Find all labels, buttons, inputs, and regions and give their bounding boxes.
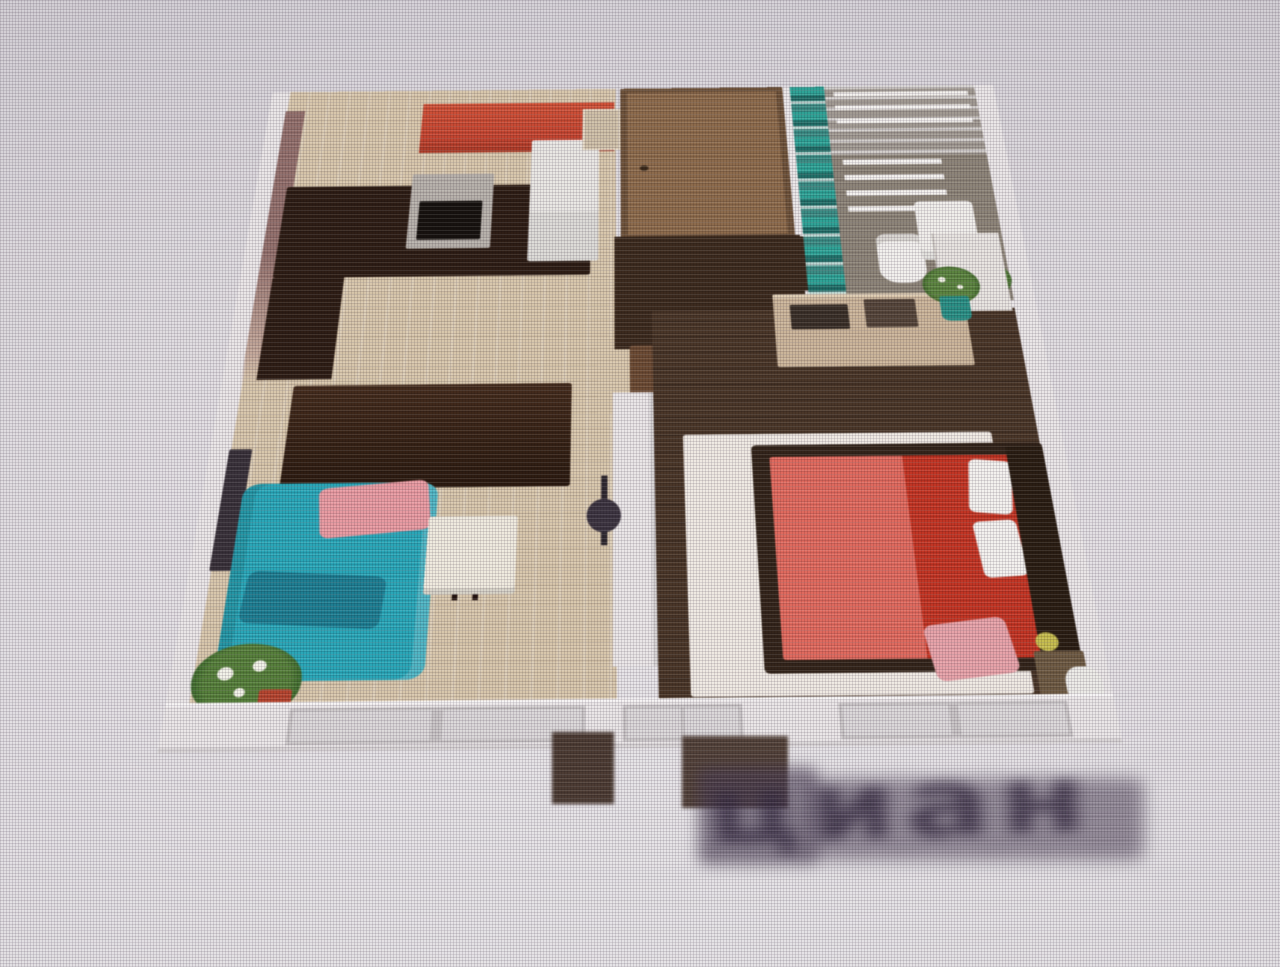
dresser-item	[790, 304, 851, 329]
dresser-plant	[920, 266, 983, 315]
door-knob	[640, 165, 649, 171]
floor-plan-area: циан	[0, 0, 1280, 967]
dresser-item	[863, 299, 918, 328]
bed-pillow	[968, 459, 1013, 515]
window	[838, 700, 1074, 739]
cooktop	[416, 201, 482, 240]
sofa-cushion	[237, 571, 387, 630]
bar-counter	[279, 383, 572, 489]
stove	[406, 174, 495, 249]
floor-plan	[155, 85, 1125, 765]
hall-shelf	[582, 109, 620, 151]
sofa-pillow	[319, 479, 431, 539]
watermark-text: циан	[704, 744, 1096, 866]
entry-step	[552, 732, 614, 804]
lamp-shade	[586, 499, 621, 533]
kitchen-side-counter	[256, 277, 344, 380]
window	[285, 705, 585, 745]
screen-photo: циан	[0, 0, 1280, 967]
pink-pillow	[922, 616, 1022, 682]
plant-pot	[939, 296, 973, 321]
bathroom-shelves	[833, 91, 974, 130]
entrance-door	[620, 87, 795, 240]
floor-lamp	[582, 475, 624, 552]
coffee-table	[423, 516, 518, 595]
fridge	[527, 140, 599, 262]
watermark: циан	[640, 752, 1160, 877]
